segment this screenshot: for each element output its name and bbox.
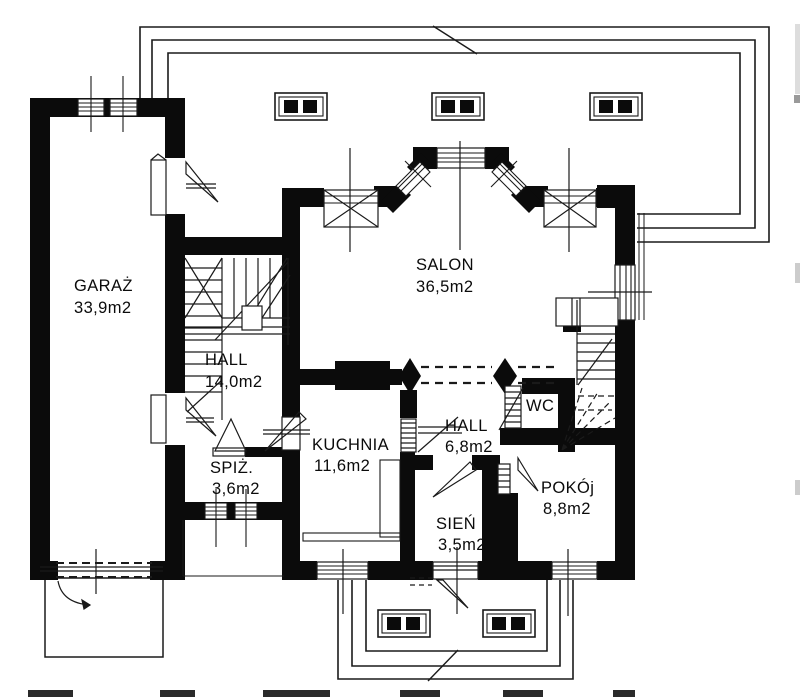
- room-area-spiz: 3,6m2: [212, 480, 260, 498]
- right-edge-marks: [794, 24, 800, 495]
- room-label-garaz: GARAŻ: [74, 276, 133, 295]
- room-area-garaz: 33,9m2: [74, 299, 131, 317]
- bottom-edge-marks: [28, 690, 635, 697]
- room-area-kuchnia: 11,6m2: [314, 457, 370, 475]
- room-area-salon: 36,5m2: [416, 278, 473, 296]
- room-label-spiz: SPIŻ.: [210, 458, 253, 477]
- planter-symbols: [275, 93, 642, 637]
- room-label-sien: SIEŃ: [436, 514, 476, 533]
- floor-plan-drawing: GARAŻ 33,9m2 SALON 36,5m2 HALL 14,0m2 KU…: [0, 0, 800, 697]
- room-label-hall68: HALL: [445, 417, 488, 435]
- porch-outline: [338, 580, 573, 681]
- terrace-outline: [140, 26, 769, 242]
- driveway-outline: [45, 578, 163, 657]
- room-label-wc: WC: [526, 397, 554, 415]
- windows-layer: [78, 76, 652, 616]
- room-label-kuchnia: KUCHNIA: [312, 436, 389, 454]
- room-label-salon: SALON: [416, 256, 474, 274]
- room-label-pokoj: POKÓj: [541, 478, 594, 497]
- room-area-hall68: 6,8m2: [445, 438, 493, 456]
- room-area-sien: 3,5m2: [438, 536, 486, 554]
- main-staircase: [185, 258, 290, 420]
- room-label-hall14: HALL: [205, 351, 248, 369]
- room-area-pokoj: 8,8m2: [543, 500, 591, 518]
- room-area-hall14: 14,0m2: [205, 373, 262, 391]
- floor-plan-page: GARAŻ 33,9m2 SALON 36,5m2 HALL 14,0m2 KU…: [0, 0, 800, 697]
